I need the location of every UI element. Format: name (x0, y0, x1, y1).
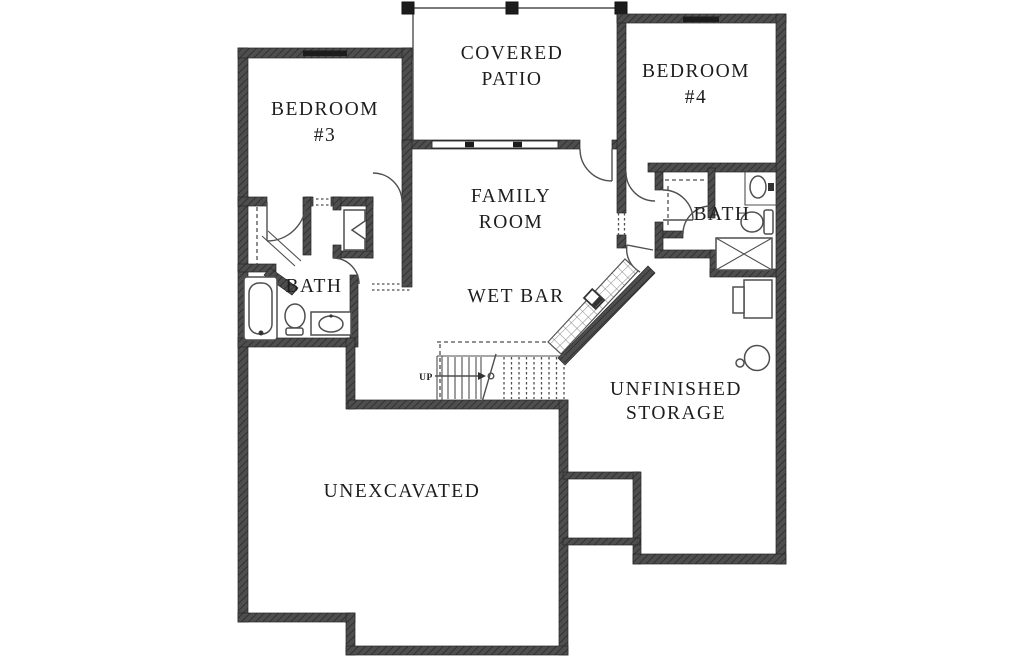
wall (333, 245, 341, 258)
wall (633, 554, 786, 564)
window-mullion (465, 142, 474, 147)
wall (559, 400, 568, 655)
covered-patio-label-2: PATIO (482, 69, 543, 90)
wall (617, 14, 626, 213)
unfinished-storage-label-1: UNFINISHED (610, 379, 742, 400)
room-labels: COVERED PATIO BEDROOM #3 BEDROOM #4 FAMI… (271, 43, 750, 502)
unexcavated-label: UNEXCAVATED (324, 481, 481, 502)
wet-bar-label: WET BAR (467, 286, 564, 307)
wall (346, 646, 568, 655)
up-arrow-head (478, 372, 486, 380)
toilet (285, 304, 305, 335)
stairs: UP (419, 333, 568, 402)
window (432, 141, 558, 148)
furnace-unit (733, 280, 772, 318)
wall (655, 250, 717, 258)
furnace-closet-door (344, 210, 365, 250)
sink (750, 176, 774, 198)
stairs-up-label: UP (419, 373, 433, 383)
wall (633, 472, 641, 564)
bathtub (244, 277, 277, 340)
wall (333, 197, 341, 210)
patio-post (615, 2, 627, 14)
window (683, 17, 719, 23)
water-heater (736, 346, 770, 371)
family-room-label-1: FAMILY (471, 186, 551, 207)
bedroom-3-label-1: BEDROOM (271, 99, 379, 120)
patio-post (506, 2, 518, 14)
wall (402, 48, 412, 149)
bedroom-4-label-1: BEDROOM (642, 61, 750, 82)
wall (346, 338, 355, 409)
wall (348, 400, 568, 409)
wall (563, 538, 640, 545)
patio-post (402, 2, 414, 14)
stair-treads (448, 357, 481, 399)
sink-vanity (311, 312, 351, 335)
wall (350, 275, 358, 347)
wall (776, 14, 786, 564)
wall (402, 140, 412, 287)
covered-patio-label-1: COVERED (461, 43, 564, 64)
bedroom3-door-arc (373, 173, 402, 202)
wall (563, 472, 640, 479)
wall (303, 197, 311, 255)
wall (238, 197, 267, 206)
wall (617, 235, 626, 248)
bedroom-3-label-2: #3 (314, 125, 337, 146)
floor-plan-drawing: UP (0, 0, 1024, 659)
wall (366, 197, 373, 258)
wall (663, 231, 683, 238)
bedroom-4-label-2: #4 (685, 87, 708, 108)
wall (655, 172, 663, 190)
unfinished-storage-label-2: STORAGE (626, 403, 726, 424)
patio-door-arc (580, 149, 612, 181)
stair-overhead-dash (437, 333, 564, 342)
bath-left-label: BATH (286, 276, 343, 297)
bath-right-label: BATH (694, 204, 751, 225)
stair-treads-dashed (504, 357, 564, 399)
storage-door-leaf (627, 245, 653, 250)
wall (238, 613, 355, 622)
shower (716, 238, 772, 270)
window-mullion (513, 142, 522, 147)
bedroom4-door-arc (626, 172, 655, 201)
family-room-label-2: ROOM (479, 212, 544, 233)
window (303, 51, 347, 57)
floor-plan: UP (0, 0, 1024, 659)
